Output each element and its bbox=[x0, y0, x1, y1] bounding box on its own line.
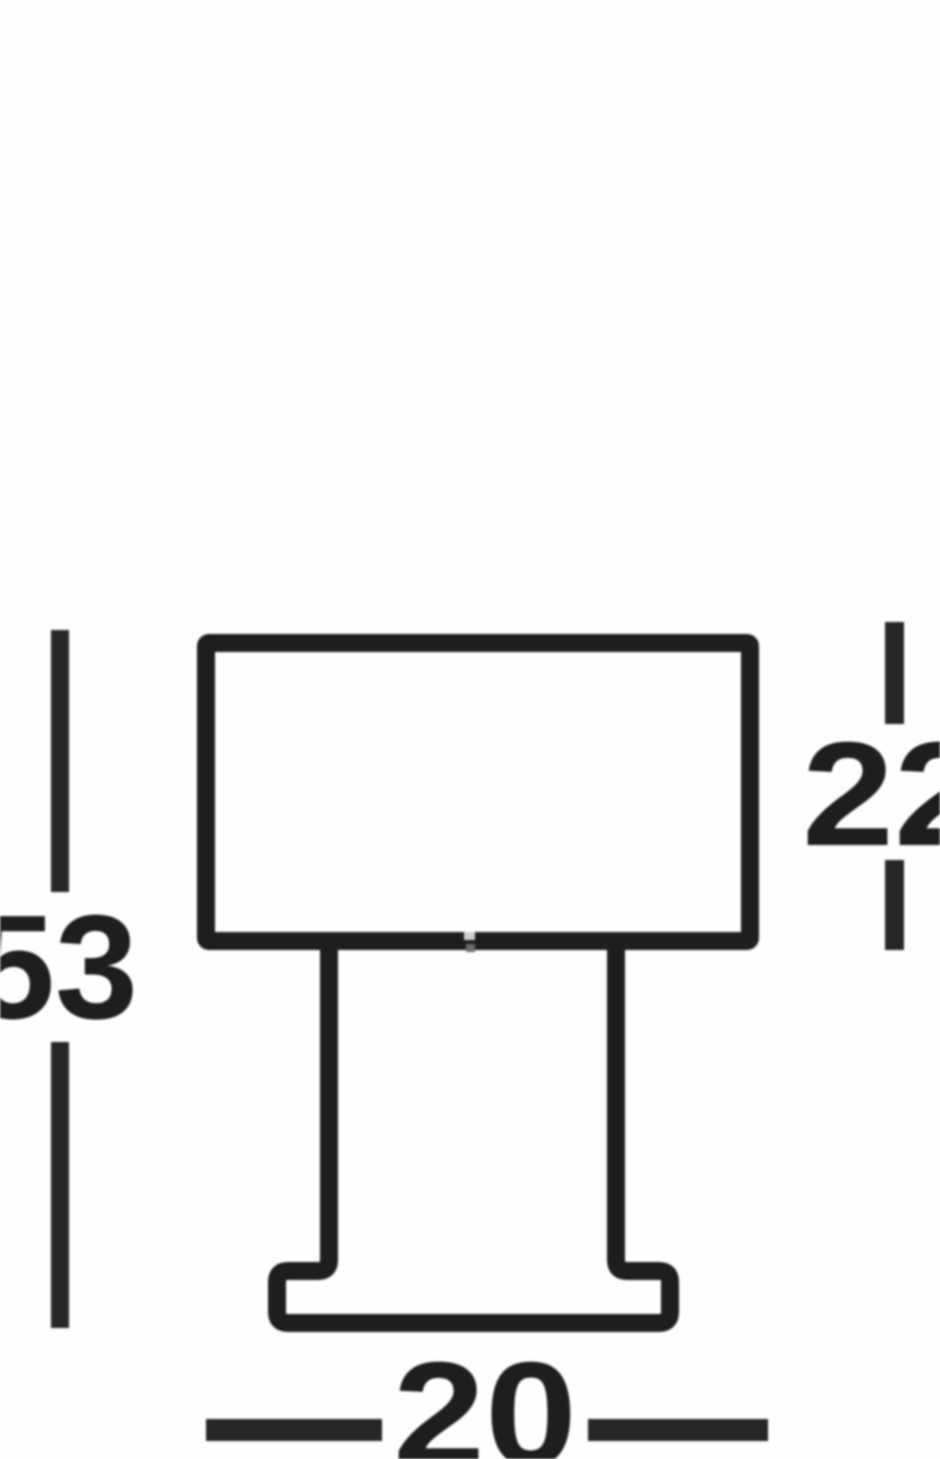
svg-text:20: 20 bbox=[393, 1332, 577, 1459]
svg-text:22: 22 bbox=[802, 712, 940, 877]
svg-text:53: 53 bbox=[0, 885, 138, 1050]
